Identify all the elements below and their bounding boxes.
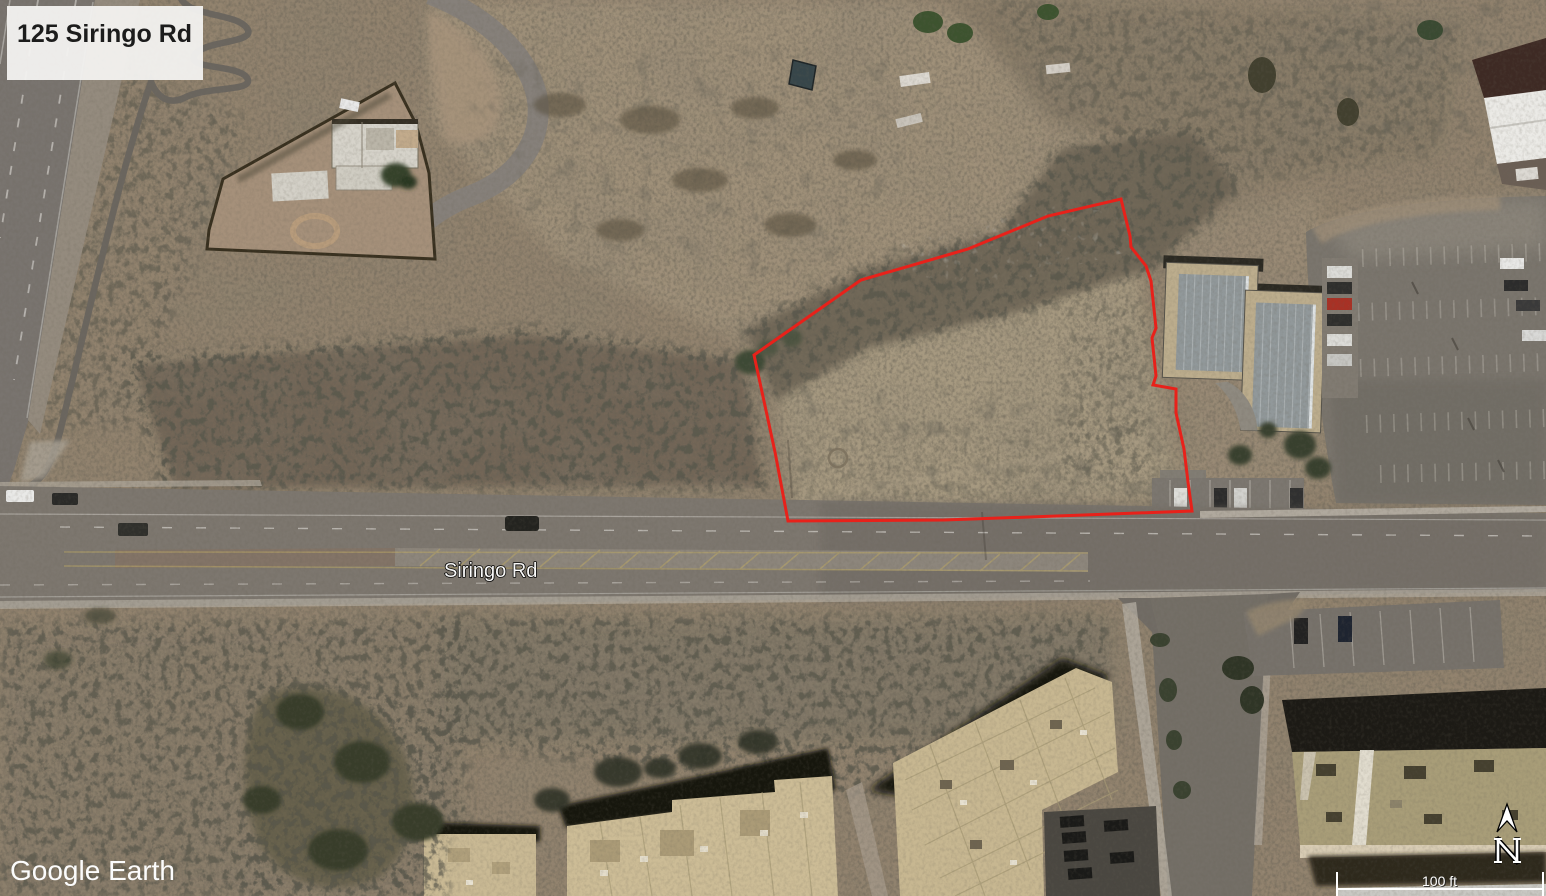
svg-text:Google Earth: Google Earth — [10, 855, 175, 886]
svg-text:125 Siringo Rd: 125 Siringo Rd — [17, 20, 192, 48]
svg-text:100 ft: 100 ft — [1422, 873, 1457, 889]
